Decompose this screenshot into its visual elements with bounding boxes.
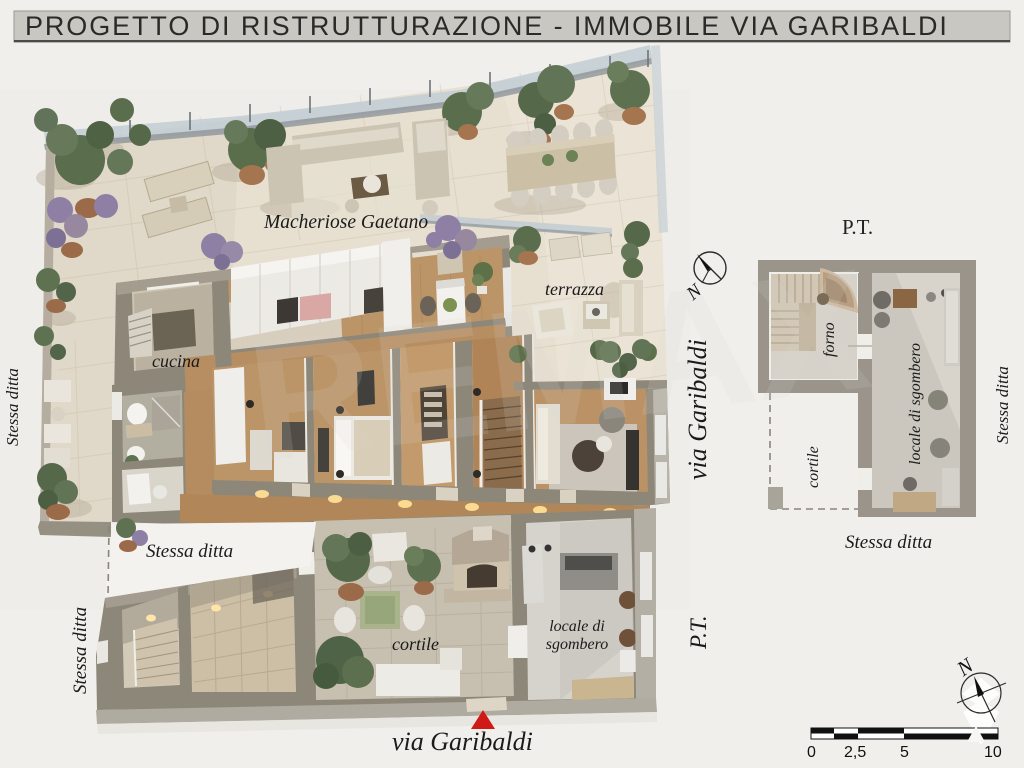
svg-text:P.T.: P.T. [686, 615, 711, 650]
svg-text:Stessa ditta: Stessa ditta [3, 368, 22, 446]
svg-text:via Garibaldi: via Garibaldi [392, 727, 533, 756]
svg-text:sgombero: sgombero [546, 636, 609, 653]
svg-text:0: 0 [807, 744, 816, 761]
svg-text:Stessa ditta: Stessa ditta [70, 607, 91, 694]
svg-text:5: 5 [900, 744, 909, 761]
svg-text:P.T.: P.T. [842, 215, 873, 239]
svg-text:locale di sgombero: locale di sgombero [907, 343, 924, 465]
svg-text:10: 10 [984, 744, 1002, 761]
svg-text:Stessa ditta: Stessa ditta [146, 541, 233, 562]
svg-text:terrazza: terrazza [545, 279, 604, 299]
svg-text:cortile: cortile [805, 446, 822, 488]
svg-text:forno: forno [821, 322, 838, 357]
svg-text:cucina: cucina [152, 351, 200, 371]
svg-text:Stessa ditta: Stessa ditta [845, 532, 932, 553]
svg-text:Macheriose Gaetano: Macheriose Gaetano [263, 212, 428, 233]
svg-text:cortile: cortile [392, 634, 439, 654]
svg-text:locale di: locale di [549, 618, 605, 635]
svg-text:PROGETTO DI RISTRUTTURAZIONE -: PROGETTO DI RISTRUTTURAZIONE - IMMOBILE … [25, 11, 949, 41]
svg-text:Stessa ditta: Stessa ditta [993, 366, 1012, 444]
svg-text:via Garibaldi: via Garibaldi [683, 339, 712, 480]
svg-text:2,5: 2,5 [844, 744, 866, 761]
